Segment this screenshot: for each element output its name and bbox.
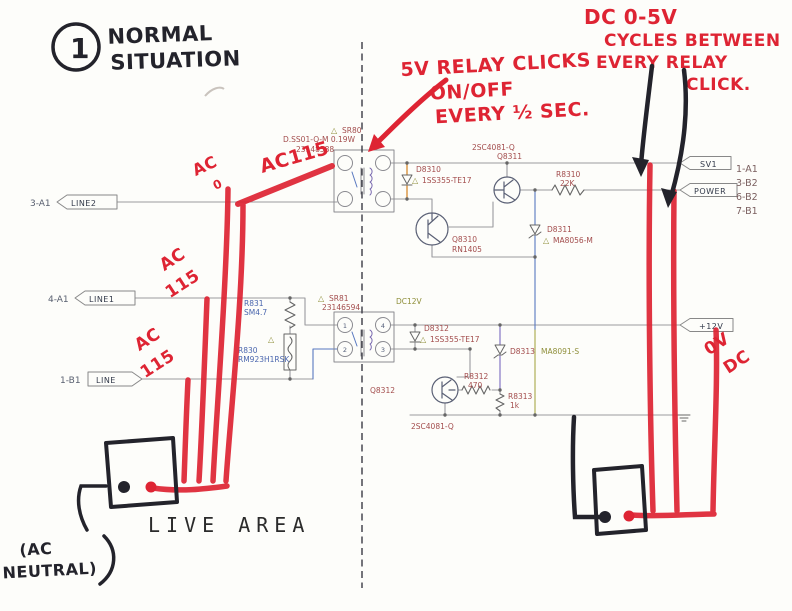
- r8310-ref: R8310: [556, 170, 581, 179]
- r8313-ref: R8313: [508, 392, 533, 401]
- note-ac-phase-line1: AC: [189, 152, 220, 180]
- black-arrow-sv1: [632, 66, 652, 177]
- note-normal-situation: 1 NORMAL SITUATION: [53, 20, 241, 75]
- d8310-val: 1SS355-TE17: [422, 176, 472, 185]
- q8312-val: 2SC4081-Q: [411, 422, 454, 431]
- q8311-val: 2SC4081-Q: [472, 143, 515, 152]
- note-ac115-mid: AC 115: [148, 244, 204, 303]
- relay1-warn: △: [331, 126, 338, 135]
- relay2-code: 23146594: [322, 303, 360, 312]
- relay2-coil: DC12V: [396, 297, 423, 306]
- r8312-ref: R8312: [464, 372, 489, 381]
- relay1-ref: SR80: [342, 126, 362, 135]
- d8311-warn: △: [543, 236, 550, 245]
- r8310-val: 22K: [560, 179, 576, 188]
- note-5v-relay-line2: ON/OFF: [429, 78, 514, 104]
- pin-list-3: 6-B2: [736, 192, 758, 203]
- red-dot-right: [624, 511, 635, 522]
- flag-power-label: POWER: [694, 187, 726, 196]
- pin-list-1: 1-A1: [736, 164, 758, 175]
- pin-1b1: 1-B1: [60, 376, 81, 386]
- note-ac-phase-line2: 0: [211, 176, 225, 192]
- relay2-pin2: 2: [343, 346, 347, 354]
- flag-line2-label: LINE2: [71, 199, 96, 208]
- note-normal-line2: SITUATION: [110, 46, 241, 75]
- q8310-val: RN1405: [452, 245, 482, 254]
- relay2-ref: SR81: [329, 294, 349, 303]
- note-dc-0-5v: DC 0-5V CYCLES BETWEEN EVERY RELAY CLICK…: [584, 5, 781, 95]
- note-0v-dc: 0V DC: [701, 325, 754, 382]
- note-normal-line1: NORMAL: [107, 21, 213, 49]
- black-arrow-power: [661, 70, 686, 208]
- relay2-warn: △: [318, 294, 325, 303]
- note-0v-dc-line2: DC: [720, 347, 754, 379]
- q8310-ref: Q8310: [452, 235, 477, 244]
- d8311-ref: D8311: [547, 225, 572, 234]
- d8312-ref: D8312: [424, 324, 449, 333]
- note-dc-line1: DC 0-5V: [584, 5, 677, 29]
- relay-sr81-symbol: [334, 312, 394, 362]
- d8310-ref: D8310: [416, 165, 441, 174]
- relay2-pin4: 4: [381, 322, 385, 330]
- note-dc-line2: CYCLES BETWEEN: [604, 31, 781, 51]
- transistor-q8311-symbol: [494, 177, 520, 203]
- d8312-warn: △: [420, 335, 427, 344]
- r831-val: SM4.7: [244, 308, 267, 317]
- relay2-pin1: 1: [343, 322, 347, 330]
- note-dc-line3: EVERY RELAY: [596, 53, 728, 73]
- red-dot-left: [146, 482, 157, 493]
- note-dc-line4: CLICK.: [686, 75, 751, 95]
- pin-list-2: 3-B2: [736, 178, 758, 189]
- note-5v-relay-line1: 5V RELAY CLICKS: [400, 49, 591, 81]
- junction-dots: [288, 161, 536, 416]
- q8312-ref: Q8312: [370, 386, 395, 395]
- d8313-ref: D8313: [510, 347, 535, 356]
- circled-number-text: 1: [70, 32, 90, 65]
- note-ac-neutral-line2: NEUTRAL): [2, 559, 97, 583]
- ground-symbol: [678, 415, 690, 421]
- relay-sr80-symbol: [334, 150, 394, 212]
- d8311-val: MA8056-M: [553, 236, 593, 245]
- transistor-q8310-symbol: [416, 213, 448, 245]
- fusible-resistor-r830-symbol: [284, 334, 296, 370]
- note-ac-phase: AC 0: [189, 152, 228, 198]
- live-area-label: LIVE AREA: [148, 513, 310, 537]
- r831-ref: R831: [244, 299, 264, 308]
- d8312-val: 1SS355-TE17: [430, 335, 480, 344]
- red-trace-left: [153, 166, 332, 490]
- black-dot-left: [118, 481, 130, 493]
- flag-line-label: LINE: [96, 376, 116, 385]
- note-ac-neutral: (AC NEUTRAL): [1, 537, 97, 583]
- note-ac-neutral-line1: (AC: [19, 539, 53, 560]
- scanned-schematic-page: 1 2 4 3: [0, 0, 792, 611]
- pencil-smudge: [205, 88, 224, 96]
- r830-warn: △: [268, 335, 275, 344]
- red-marker-annotations: 5V RELAY CLICKS ON/OFF EVERY ½ SEC. DC 0…: [123, 5, 781, 522]
- r8313-val: 1k: [510, 401, 520, 410]
- d8313-val: MA8091-S: [541, 347, 579, 356]
- transistor-q8312-symbol: [432, 377, 458, 403]
- neutral-hook: [79, 486, 106, 530]
- resistor-r831-symbol: [285, 302, 295, 328]
- d8310-warn: △: [412, 176, 419, 185]
- pin-list-4: 7-B1: [736, 206, 758, 217]
- r830-val: RM923H1RSK: [238, 355, 290, 364]
- flag-line1-label: LINE1: [89, 295, 114, 304]
- relay2-pin3: 3: [381, 346, 385, 354]
- neutral-bracket: [100, 536, 114, 584]
- pin-3a1: 3-A1: [30, 199, 51, 209]
- r830-ref: R830: [238, 346, 258, 355]
- diode-d8312-symbol: [410, 332, 420, 342]
- resistor-r8313-symbol: [496, 394, 504, 411]
- q8311-ref: Q8311: [497, 152, 522, 161]
- note-5v-relay: 5V RELAY CLICKS ON/OFF EVERY ½ SEC.: [400, 49, 594, 130]
- pin-4a1: 4-A1: [48, 295, 69, 305]
- flag-sv1-label: SV1: [700, 160, 717, 169]
- r8312-val: 470: [468, 381, 483, 390]
- diode-d8310-symbol: [402, 175, 412, 185]
